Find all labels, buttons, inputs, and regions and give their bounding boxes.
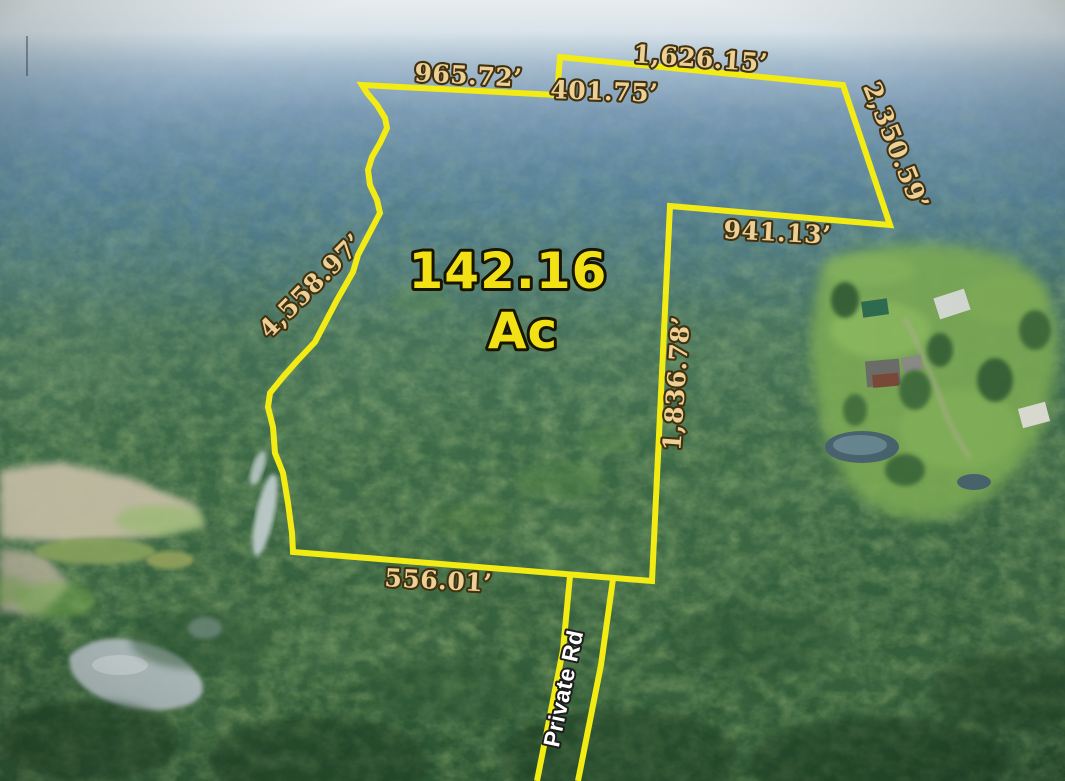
dimension-text: 941.13’ xyxy=(723,215,832,250)
area-value: 142.16 xyxy=(409,242,608,300)
dimension-label-east-upper: 941.13’ xyxy=(723,215,832,250)
dimension-text: 401.75’ xyxy=(550,75,659,108)
scene-canvas: 965.72’ 401.75’ 1,626.15’ 2,350.59’ 941.… xyxy=(0,0,1065,781)
dimension-label-north-west: 965.72’ xyxy=(414,58,523,93)
area-unit: Ac xyxy=(488,302,558,360)
dimension-label-south: 556.01’ xyxy=(384,563,493,598)
dimension-text: 556.01’ xyxy=(384,563,493,598)
dimension-text: 965.72’ xyxy=(414,58,523,93)
aerial-property-photo: 965.72’ 401.75’ 1,626.15’ 2,350.59’ 941.… xyxy=(0,0,1065,781)
dimension-label-north-notch: 401.75’ xyxy=(550,75,659,108)
vignette xyxy=(0,0,1065,781)
